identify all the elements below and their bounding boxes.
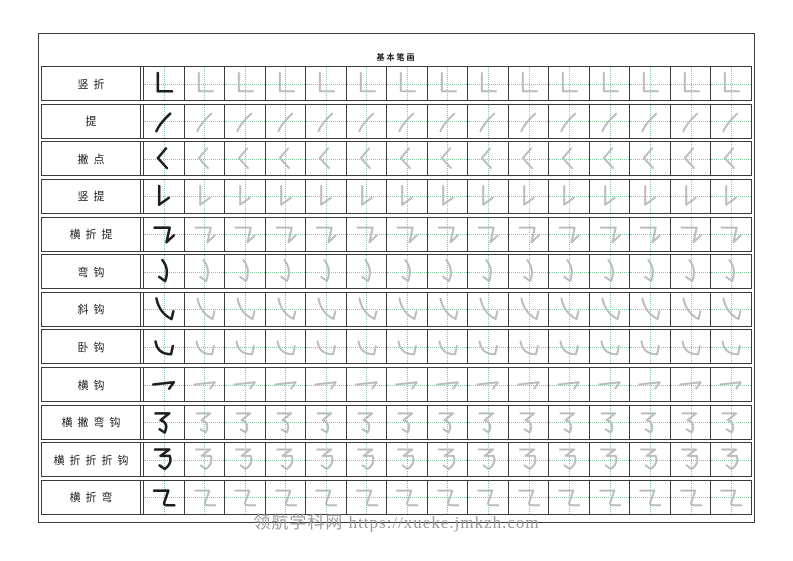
practice-cells: [143, 180, 751, 213]
stroke-wan-gou-icon: [672, 256, 710, 287]
example-cell: [144, 105, 185, 138]
stroke-shu-zhe-icon: [712, 68, 750, 99]
stroke-heng-gou-icon: [591, 369, 629, 400]
stroke-heng-pie-wan-gou-icon: [348, 407, 386, 438]
practice-cell: [711, 293, 751, 326]
practice-cell: [428, 105, 469, 138]
practice-cell: [387, 330, 428, 363]
stroke-ti-icon: [672, 106, 710, 137]
practice-cell: [509, 443, 550, 476]
stroke-pie-dian-icon: [307, 143, 345, 174]
stroke-ti-icon: [510, 106, 548, 137]
stroke-heng-pie-wan-gou-icon: [469, 407, 507, 438]
watermark: 领航学科网 https://xueke.jmkzh.com: [253, 508, 539, 533]
row-label: 横折提: [42, 218, 141, 251]
practice-cell: [185, 142, 226, 175]
stroke-pie-dian-icon: [226, 143, 264, 174]
stroke-pie-dian-icon: [145, 143, 183, 174]
stroke-heng-pie-wan-gou-icon: [672, 407, 710, 438]
stroke-heng-zhe-wan-icon: [550, 482, 588, 513]
practice-cell: [266, 180, 307, 213]
practice-cell: [549, 330, 590, 363]
stroke-wo-gou-icon: [267, 331, 305, 362]
practice-cell: [266, 330, 307, 363]
stroke-shu-ti-icon: [591, 181, 629, 212]
stroke-ti-icon: [348, 106, 386, 137]
stroke-heng-gou-icon: [631, 369, 669, 400]
row-label: 撇点: [42, 142, 141, 175]
practice-cell: [225, 142, 266, 175]
practice-cell: [266, 105, 307, 138]
stroke-heng-zhe-zhe-zhe-gou-icon: [672, 444, 710, 475]
practice-cell: [549, 180, 590, 213]
stroke-shu-zhe-icon: [388, 68, 426, 99]
stroke-wo-gou-icon: [469, 331, 507, 362]
stroke-xie-gou-icon: [307, 294, 345, 325]
stroke-heng-zhe-ti-icon: [388, 219, 426, 250]
practice-cell: [549, 443, 590, 476]
stroke-xie-gou-icon: [712, 294, 750, 325]
stroke-wo-gou-icon: [145, 331, 183, 362]
row-label: 横折弯: [42, 481, 141, 514]
stroke-shu-zhe-icon: [145, 68, 183, 99]
practice-cell: [306, 142, 347, 175]
practice-cell: [266, 218, 307, 251]
practice-cell: [387, 105, 428, 138]
practice-cell: [468, 180, 509, 213]
practice-cell: [306, 180, 347, 213]
practice-cell: [590, 368, 631, 401]
stroke-heng-zhe-ti-icon: [469, 219, 507, 250]
stroke-pie-dian-icon: [591, 143, 629, 174]
practice-cell: [347, 67, 388, 100]
practice-cell: [306, 406, 347, 439]
stroke-wo-gou-icon: [388, 331, 426, 362]
stroke-row: 横钩: [41, 367, 752, 402]
worksheet: 基本笔画 竖折提撇点竖提横折提弯钩斜钩卧钩横钩横撇弯钩横折折折钩横折弯: [38, 33, 755, 523]
practice-cell: [711, 180, 751, 213]
practice-cell: [347, 293, 388, 326]
practice-cell: [630, 330, 671, 363]
practice-cell: [590, 218, 631, 251]
practice-cell: [306, 443, 347, 476]
practice-cell: [185, 180, 226, 213]
practice-cell: [428, 218, 469, 251]
practice-cell: [549, 255, 590, 288]
stroke-heng-zhe-zhe-zhe-gou-icon: [429, 444, 467, 475]
practice-cell: [671, 406, 712, 439]
stroke-wan-gou-icon: [307, 256, 345, 287]
stroke-heng-zhe-wan-icon: [591, 482, 629, 513]
practice-cell: [549, 67, 590, 100]
row-label: 横钩: [42, 368, 141, 401]
example-cell: [144, 443, 185, 476]
stroke-wan-gou-icon: [429, 256, 467, 287]
practice-cell: [549, 481, 590, 514]
stroke-wo-gou-icon: [429, 331, 467, 362]
stroke-heng-zhe-zhe-zhe-gou-icon: [267, 444, 305, 475]
practice-cell: [266, 142, 307, 175]
practice-cell: [185, 368, 226, 401]
stroke-ti-icon: [226, 106, 264, 137]
practice-cell: [266, 406, 307, 439]
stroke-heng-pie-wan-gou-icon: [307, 407, 345, 438]
stroke-heng-gou-icon: [186, 369, 224, 400]
stroke-pie-dian-icon: [429, 143, 467, 174]
practice-cells: [143, 67, 751, 100]
stroke-wo-gou-icon: [672, 331, 710, 362]
stroke-heng-zhe-zhe-zhe-gou-icon: [712, 444, 750, 475]
practice-cell: [387, 67, 428, 100]
stroke-heng-gou-icon: [145, 369, 183, 400]
stroke-shu-zhe-icon: [226, 68, 264, 99]
stroke-heng-zhe-ti-icon: [145, 219, 183, 250]
stroke-wan-gou-icon: [712, 256, 750, 287]
practice-cell: [630, 218, 671, 251]
stroke-pie-dian-icon: [631, 143, 669, 174]
stroke-heng-zhe-ti-icon: [631, 219, 669, 250]
practice-cell: [306, 105, 347, 138]
stroke-xie-gou-icon: [186, 294, 224, 325]
practice-cell: [590, 293, 631, 326]
practice-cell: [225, 368, 266, 401]
example-cell: [144, 67, 185, 100]
stroke-xie-gou-icon: [429, 294, 467, 325]
practice-cell: [468, 443, 509, 476]
stroke-pie-dian-icon: [186, 143, 224, 174]
practice-cell: [549, 293, 590, 326]
stroke-wo-gou-icon: [631, 331, 669, 362]
practice-cell: [428, 330, 469, 363]
stroke-heng-zhe-zhe-zhe-gou-icon: [510, 444, 548, 475]
stroke-heng-zhe-wan-icon: [672, 482, 710, 513]
stroke-ti-icon: [429, 106, 467, 137]
stroke-row: 竖折: [41, 66, 752, 101]
practice-cell: [347, 443, 388, 476]
row-label: 竖折: [42, 67, 141, 100]
stroke-heng-zhe-ti-icon: [550, 219, 588, 250]
practice-cell: [347, 255, 388, 288]
stroke-row: 横撇弯钩: [41, 405, 752, 440]
practice-cell: [590, 255, 631, 288]
practice-cell: [428, 406, 469, 439]
example-cell: [144, 255, 185, 288]
stroke-shu-ti-icon: [388, 181, 426, 212]
stroke-pie-dian-icon: [469, 143, 507, 174]
practice-cell: [266, 255, 307, 288]
practice-cell: [347, 218, 388, 251]
practice-cell: [225, 443, 266, 476]
practice-cell: [671, 180, 712, 213]
practice-cell: [711, 67, 751, 100]
practice-cell: [185, 218, 226, 251]
stroke-wan-gou-icon: [186, 256, 224, 287]
practice-cell: [306, 368, 347, 401]
stroke-heng-zhe-zhe-zhe-gou-icon: [145, 444, 183, 475]
row-label: 横折折折钩: [42, 443, 141, 476]
practice-cell: [387, 406, 428, 439]
practice-cell: [185, 255, 226, 288]
stroke-pie-dian-icon: [550, 143, 588, 174]
practice-cell: [711, 443, 751, 476]
stroke-heng-zhe-ti-icon: [348, 219, 386, 250]
practice-cell: [630, 481, 671, 514]
practice-cell: [711, 105, 751, 138]
practice-cell: [549, 142, 590, 175]
stroke-heng-gou-icon: [226, 369, 264, 400]
stroke-heng-zhe-zhe-zhe-gou-icon: [226, 444, 264, 475]
practice-cell: [671, 142, 712, 175]
stroke-pie-dian-icon: [388, 143, 426, 174]
practice-cell: [630, 368, 671, 401]
practice-cell: [468, 105, 509, 138]
practice-cell: [671, 330, 712, 363]
practice-cell: [671, 105, 712, 138]
stroke-wan-gou-icon: [631, 256, 669, 287]
stroke-xie-gou-icon: [550, 294, 588, 325]
stroke-heng-zhe-ti-icon: [267, 219, 305, 250]
stroke-shu-zhe-icon: [591, 68, 629, 99]
stroke-wan-gou-icon: [469, 256, 507, 287]
stroke-heng-zhe-zhe-zhe-gou-icon: [631, 444, 669, 475]
stroke-xie-gou-icon: [348, 294, 386, 325]
example-cell: [144, 293, 185, 326]
practice-cells: [143, 255, 751, 288]
stroke-heng-zhe-ti-icon: [226, 219, 264, 250]
stroke-heng-pie-wan-gou-icon: [186, 407, 224, 438]
stroke-heng-pie-wan-gou-icon: [712, 407, 750, 438]
practice-cell: [266, 443, 307, 476]
practice-cell: [468, 255, 509, 288]
practice-cell: [671, 293, 712, 326]
practice-cell: [590, 142, 631, 175]
stroke-heng-gou-icon: [429, 369, 467, 400]
stroke-heng-zhe-ti-icon: [672, 219, 710, 250]
stroke-heng-zhe-zhe-zhe-gou-icon: [186, 444, 224, 475]
practice-cell: [671, 481, 712, 514]
stroke-heng-zhe-ti-icon: [510, 219, 548, 250]
stroke-row: 撇点: [41, 141, 752, 176]
stroke-xie-gou-icon: [388, 294, 426, 325]
practice-cell: [347, 406, 388, 439]
stroke-heng-gou-icon: [672, 369, 710, 400]
practice-cell: [428, 142, 469, 175]
practice-cell: [266, 368, 307, 401]
practice-cell: [590, 67, 631, 100]
practice-cells: [143, 105, 751, 138]
practice-cell: [225, 255, 266, 288]
practice-cell: [185, 330, 226, 363]
practice-cell: [347, 142, 388, 175]
stroke-shu-ti-icon: [429, 181, 467, 212]
stroke-wan-gou-icon: [226, 256, 264, 287]
stroke-ti-icon: [712, 106, 750, 137]
practice-cell: [387, 443, 428, 476]
stroke-heng-zhe-ti-icon: [429, 219, 467, 250]
stroke-heng-pie-wan-gou-icon: [550, 407, 588, 438]
practice-cell: [509, 218, 550, 251]
stroke-ti-icon: [145, 106, 183, 137]
stroke-shu-zhe-icon: [348, 68, 386, 99]
stroke-ti-icon: [186, 106, 224, 137]
practice-cells: [143, 293, 751, 326]
practice-cell: [711, 368, 751, 401]
practice-cell: [468, 368, 509, 401]
example-cell: [144, 481, 185, 514]
practice-cell: [590, 481, 631, 514]
practice-cell: [185, 406, 226, 439]
stroke-pie-dian-icon: [712, 143, 750, 174]
practice-cell: [671, 67, 712, 100]
stroke-shu-ti-icon: [226, 181, 264, 212]
practice-cell: [509, 293, 550, 326]
stroke-wan-gou-icon: [550, 256, 588, 287]
sheet-title: 基本笔画: [377, 52, 417, 65]
practice-cell: [428, 67, 469, 100]
practice-cell: [630, 180, 671, 213]
stroke-wan-gou-icon: [145, 256, 183, 287]
stroke-shu-zhe-icon: [307, 68, 345, 99]
practice-cell: [468, 293, 509, 326]
practice-cell: [671, 368, 712, 401]
practice-cell: [549, 406, 590, 439]
stroke-heng-pie-wan-gou-icon: [429, 407, 467, 438]
stroke-shu-ti-icon: [672, 181, 710, 212]
practice-cells: [143, 406, 751, 439]
row-label: 提: [42, 105, 141, 138]
stroke-heng-pie-wan-gou-icon: [226, 407, 264, 438]
practice-cell: [225, 406, 266, 439]
stroke-shu-ti-icon: [469, 181, 507, 212]
example-cell: [144, 368, 185, 401]
stroke-heng-zhe-zhe-zhe-gou-icon: [469, 444, 507, 475]
practice-cell: [509, 406, 550, 439]
practice-cell: [711, 255, 751, 288]
practice-cell: [428, 180, 469, 213]
stroke-shu-ti-icon: [348, 181, 386, 212]
practice-cell: [185, 293, 226, 326]
stroke-shu-zhe-icon: [186, 68, 224, 99]
practice-cells: [143, 330, 751, 363]
practice-cell: [387, 293, 428, 326]
practice-cell: [590, 406, 631, 439]
practice-cell: [711, 406, 751, 439]
stroke-xie-gou-icon: [591, 294, 629, 325]
practice-cell: [509, 255, 550, 288]
row-label: 卧钩: [42, 330, 141, 363]
stroke-shu-ti-icon: [712, 181, 750, 212]
practice-cell: [590, 180, 631, 213]
stroke-row: 弯钩: [41, 254, 752, 289]
stroke-shu-zhe-icon: [631, 68, 669, 99]
practice-cell: [225, 330, 266, 363]
stroke-wan-gou-icon: [348, 256, 386, 287]
stroke-xie-gou-icon: [267, 294, 305, 325]
practice-cell: [185, 105, 226, 138]
practice-cell: [590, 443, 631, 476]
stroke-heng-zhe-zhe-zhe-gou-icon: [348, 444, 386, 475]
practice-cell: [306, 330, 347, 363]
practice-cell: [630, 105, 671, 138]
practice-cell: [549, 218, 590, 251]
stroke-pie-dian-icon: [510, 143, 548, 174]
practice-cell: [266, 293, 307, 326]
practice-cell: [387, 255, 428, 288]
practice-cell: [630, 406, 671, 439]
practice-cell: [387, 180, 428, 213]
stroke-ti-icon: [550, 106, 588, 137]
stroke-wan-gou-icon: [591, 256, 629, 287]
stroke-heng-gou-icon: [510, 369, 548, 400]
practice-cell: [306, 255, 347, 288]
practice-cell: [590, 330, 631, 363]
stroke-ti-icon: [631, 106, 669, 137]
practice-cell: [225, 67, 266, 100]
stroke-ti-icon: [307, 106, 345, 137]
practice-cell: [509, 368, 550, 401]
stroke-wo-gou-icon: [226, 331, 264, 362]
stroke-heng-pie-wan-gou-icon: [145, 407, 183, 438]
practice-cell: [549, 368, 590, 401]
practice-cell: [306, 67, 347, 100]
stroke-ti-icon: [267, 106, 305, 137]
stroke-heng-zhe-zhe-zhe-gou-icon: [307, 444, 345, 475]
practice-cell: [428, 368, 469, 401]
stroke-wo-gou-icon: [348, 331, 386, 362]
practice-cell: [468, 406, 509, 439]
stroke-heng-zhe-wan-icon: [631, 482, 669, 513]
stroke-shu-ti-icon: [145, 181, 183, 212]
stroke-shu-ti-icon: [550, 181, 588, 212]
stroke-shu-zhe-icon: [429, 68, 467, 99]
practice-cell: [225, 293, 266, 326]
practice-cell: [630, 67, 671, 100]
practice-cell: [347, 330, 388, 363]
row-label: 弯钩: [42, 255, 141, 288]
stroke-ti-icon: [388, 106, 426, 137]
stroke-row: 横折折折钩: [41, 442, 752, 477]
stroke-heng-gou-icon: [550, 369, 588, 400]
stroke-shu-ti-icon: [267, 181, 305, 212]
practice-cell: [630, 443, 671, 476]
stroke-wo-gou-icon: [550, 331, 588, 362]
practice-cell: [549, 105, 590, 138]
stroke-row: 卧钩: [41, 329, 752, 364]
stroke-pie-dian-icon: [672, 143, 710, 174]
practice-cell: [468, 142, 509, 175]
stroke-rows: 竖折提撇点竖提横折提弯钩斜钩卧钩横钩横撇弯钩横折折折钩横折弯: [39, 65, 754, 518]
stroke-heng-zhe-wan-icon: [145, 482, 183, 513]
practice-cells: [143, 368, 751, 401]
stroke-shu-ti-icon: [307, 181, 345, 212]
stroke-heng-pie-wan-gou-icon: [510, 407, 548, 438]
practice-cell: [347, 105, 388, 138]
practice-cell: [711, 481, 751, 514]
title-band: 基本笔画: [39, 34, 754, 65]
practice-cell: [428, 293, 469, 326]
practice-cell: [468, 218, 509, 251]
stroke-heng-zhe-ti-icon: [712, 219, 750, 250]
practice-cell: [266, 67, 307, 100]
stroke-heng-zhe-zhe-zhe-gou-icon: [591, 444, 629, 475]
stroke-row: 提: [41, 104, 752, 139]
stroke-wan-gou-icon: [267, 256, 305, 287]
stroke-heng-zhe-zhe-zhe-gou-icon: [388, 444, 426, 475]
practice-cell: [185, 443, 226, 476]
row-label: 斜钩: [42, 293, 141, 326]
practice-cell: [468, 67, 509, 100]
stroke-row: 横折提: [41, 217, 752, 252]
